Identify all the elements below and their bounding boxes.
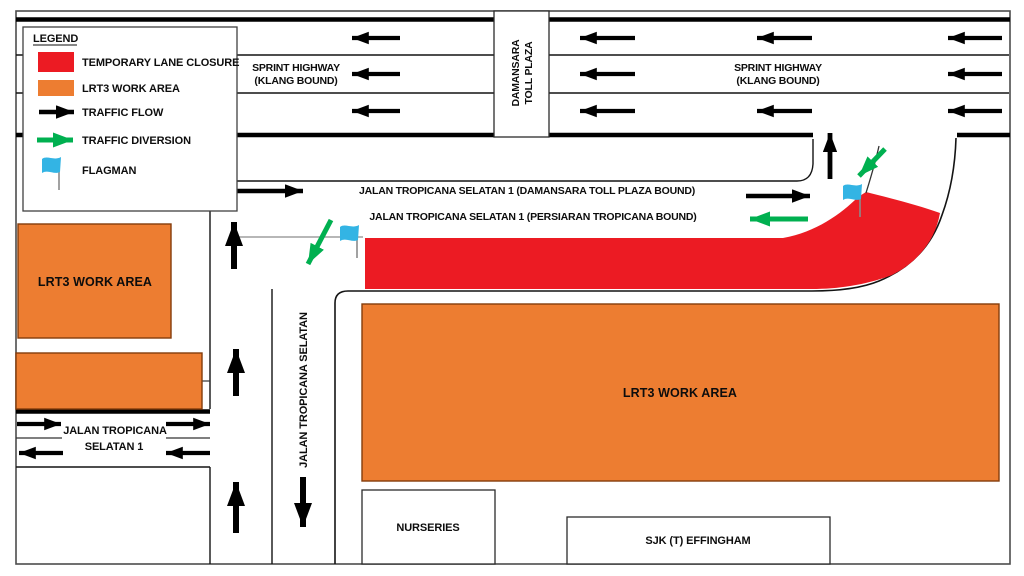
- legend-closure-swatch: [38, 52, 74, 72]
- nurseries-label: NURSERIES: [396, 522, 459, 534]
- jts1-damansara-bound-label: JALAN TROPICANA SELATAN 1 (DAMANSARA TOL…: [359, 185, 695, 197]
- traffic-plan-diagram: DAMANSARA TOLL PLAZA LRT3 WORK AREA LRT3…: [0, 0, 1024, 576]
- diagram-canvas: DAMANSARA TOLL PLAZA LRT3 WORK AREA LRT3…: [0, 0, 1024, 576]
- legend-closure-label: TEMPORARY LANE CLOSURE: [82, 57, 239, 69]
- lrt3-work-area-strip: [16, 353, 202, 409]
- jts1-west-label-line1: JALAN TROPICANA: [63, 425, 167, 437]
- sprint-highway-left-line2: (KLANG BOUND): [254, 75, 337, 87]
- jts1-west-label-line2: SELATAN 1: [85, 441, 144, 453]
- lrt3-work-area-left-label: LRT3 WORK AREA: [38, 275, 152, 289]
- legend-traffic-flow-label: TRAFFIC FLOW: [82, 107, 164, 119]
- toll-plaza-label-line1: DAMANSARA: [510, 39, 522, 107]
- legend-work-area-label: LRT3 WORK AREA: [82, 83, 180, 95]
- legend-work-area-swatch: [38, 80, 74, 96]
- sprint-highway-right-line1: SPRINT HIGHWAY: [734, 62, 822, 74]
- school-label: SJK (T) EFFINGHAM: [645, 535, 750, 547]
- sprint-highway-right-line2: (KLANG BOUND): [736, 75, 819, 87]
- lrt3-work-area-main-label: LRT3 WORK AREA: [623, 386, 737, 400]
- legend-diversion-label: TRAFFIC DIVERSION: [82, 135, 191, 147]
- toll-plaza-label: DAMANSARA TOLL PLAZA: [510, 39, 535, 107]
- legend-flagman-label: FLAGMAN: [82, 165, 136, 177]
- legend-title: LEGEND: [33, 33, 78, 45]
- legend: LEGEND TEMPORARY LANE CLOSURE LRT3 WORK …: [23, 27, 239, 211]
- jalan-tropicana-selatan-label: JALAN TROPICANA SELATAN: [298, 312, 310, 468]
- sprint-highway-left-line1: SPRINT HIGHWAY: [252, 62, 340, 74]
- toll-plaza-label-line2: TOLL PLAZA: [523, 41, 535, 105]
- jts1-persiaran-bound-label: JALAN TROPICANA SELATAN 1 (PERSIARAN TRO…: [369, 211, 696, 223]
